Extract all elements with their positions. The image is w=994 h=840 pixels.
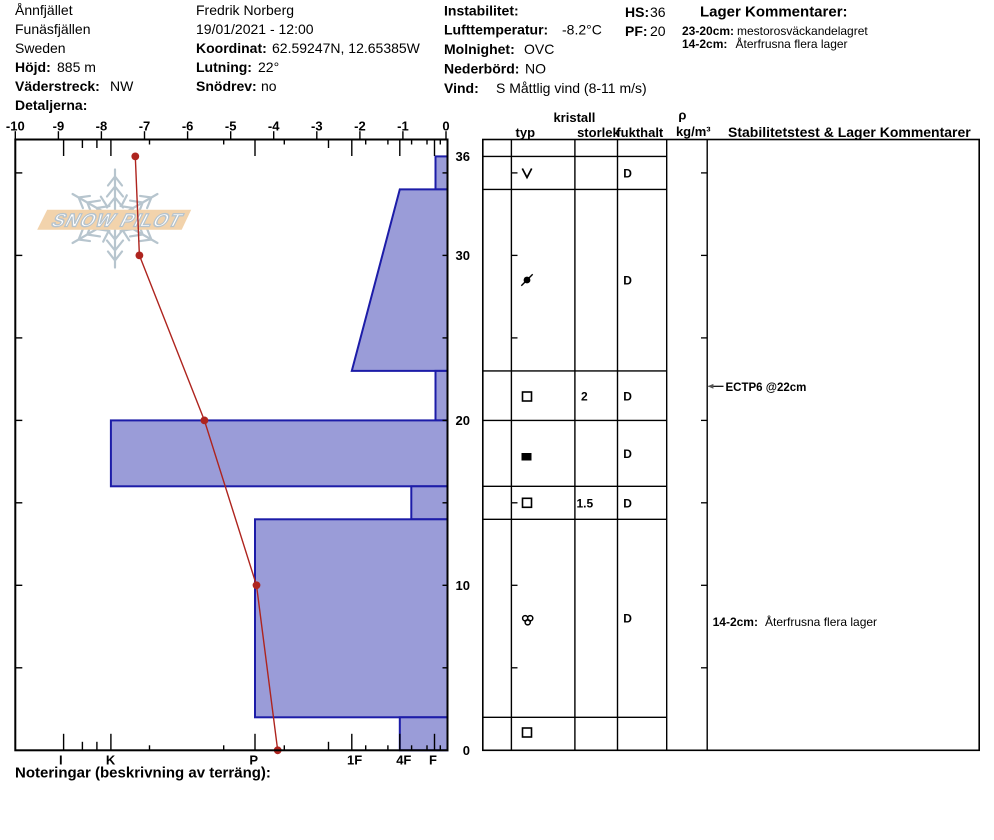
svg-text:Fredrik Norberg: Fredrik Norberg bbox=[196, 2, 294, 18]
svg-text:Instabilitet:: Instabilitet: bbox=[444, 3, 519, 19]
svg-text:1F: 1F bbox=[347, 753, 362, 768]
svg-text:10: 10 bbox=[456, 578, 470, 593]
svg-text:20: 20 bbox=[456, 413, 470, 428]
svg-text:-10: -10 bbox=[6, 118, 25, 133]
svg-text:kristall: kristall bbox=[553, 110, 595, 125]
svg-text:-5: -5 bbox=[225, 118, 237, 133]
svg-text:F: F bbox=[429, 753, 437, 768]
svg-text:-9: -9 bbox=[53, 118, 65, 133]
svg-text:4F: 4F bbox=[396, 753, 411, 768]
svg-text:36: 36 bbox=[456, 149, 470, 164]
svg-text:Ånnfjället: Ånnfjället bbox=[15, 2, 73, 18]
svg-text:-8: -8 bbox=[96, 118, 108, 133]
svg-text:-6: -6 bbox=[182, 118, 194, 133]
svg-text:Lufttemperatur:-8.2°C: Lufttemperatur:-8.2°C bbox=[444, 22, 602, 38]
svg-text:SNOW PILOT: SNOW PILOT bbox=[48, 210, 188, 231]
svg-text:0: 0 bbox=[442, 118, 449, 133]
svg-text:D: D bbox=[623, 390, 632, 404]
svg-text:30: 30 bbox=[456, 248, 470, 263]
svg-text:typ: typ bbox=[516, 125, 536, 140]
svg-text:HS:36: HS:36 bbox=[625, 4, 666, 20]
svg-text:Detaljerna:: Detaljerna: bbox=[15, 97, 87, 113]
svg-text:ρ: ρ bbox=[678, 108, 686, 123]
svg-text:D: D bbox=[623, 274, 632, 288]
svg-text:storlek: storlek bbox=[577, 125, 620, 140]
svg-text:Snödrev:no: Snödrev:no bbox=[196, 78, 277, 94]
svg-text:Höjd:885 m: Höjd:885 m bbox=[15, 59, 96, 75]
svg-text:14-2cm:Återfrusna flera lager: 14-2cm:Återfrusna flera lager bbox=[682, 36, 848, 51]
svg-text:-4: -4 bbox=[268, 118, 280, 133]
svg-text:Molnighet:OVC: Molnighet:OVC bbox=[444, 41, 554, 57]
svg-text:D: D bbox=[623, 612, 632, 626]
svg-text:23-20cm:mestorosväckandelagret: 23-20cm:mestorosväckandelagret bbox=[682, 24, 868, 38]
svg-text:-7: -7 bbox=[139, 118, 151, 133]
svg-text:D: D bbox=[623, 447, 632, 461]
svg-text:Lager Kommentarer:: Lager Kommentarer: bbox=[700, 4, 848, 21]
svg-text:kg/m³: kg/m³ bbox=[676, 124, 711, 139]
svg-text:fukthalt: fukthalt bbox=[616, 125, 664, 140]
svg-text:-1: -1 bbox=[397, 118, 409, 133]
svg-text:Stabilitetstest & Lager Kommen: Stabilitetstest & Lager Kommentarer bbox=[728, 124, 971, 140]
svg-text:ECTP6 @22cm: ECTP6 @22cm bbox=[726, 382, 807, 394]
svg-text:1.5: 1.5 bbox=[577, 496, 594, 510]
svg-text:Noteringar (beskrivning av ter: Noteringar (beskrivning av terräng): bbox=[15, 765, 271, 782]
svg-text:0: 0 bbox=[463, 743, 470, 758]
svg-text:14-2cm:Återfrusna flera lager: 14-2cm:Återfrusna flera lager bbox=[713, 614, 877, 629]
svg-text:Nederbörd:NO: Nederbörd:NO bbox=[444, 61, 546, 77]
svg-text:Väderstreck:NW: Väderstreck:NW bbox=[15, 78, 134, 94]
svg-text:-2: -2 bbox=[354, 118, 366, 133]
svg-text:Funäsfjällen: Funäsfjällen bbox=[15, 21, 91, 37]
svg-text:Sweden: Sweden bbox=[15, 40, 66, 56]
svg-text:Lutning:22°: Lutning:22° bbox=[196, 59, 279, 75]
svg-text:PF:20: PF:20 bbox=[625, 23, 666, 39]
svg-text:Vind:S Måttlig vind (8-11 m/s): Vind:S Måttlig vind (8-11 m/s) bbox=[444, 80, 647, 96]
svg-text:D: D bbox=[623, 496, 632, 510]
svg-text:Koordinat:62.59247N, 12.65385W: Koordinat:62.59247N, 12.65385W bbox=[196, 40, 421, 56]
svg-text:D: D bbox=[623, 166, 632, 180]
svg-text:2: 2 bbox=[581, 390, 588, 404]
svg-text:19/01/2021 - 12:00: 19/01/2021 - 12:00 bbox=[196, 21, 314, 37]
svg-text:-3: -3 bbox=[311, 118, 323, 133]
